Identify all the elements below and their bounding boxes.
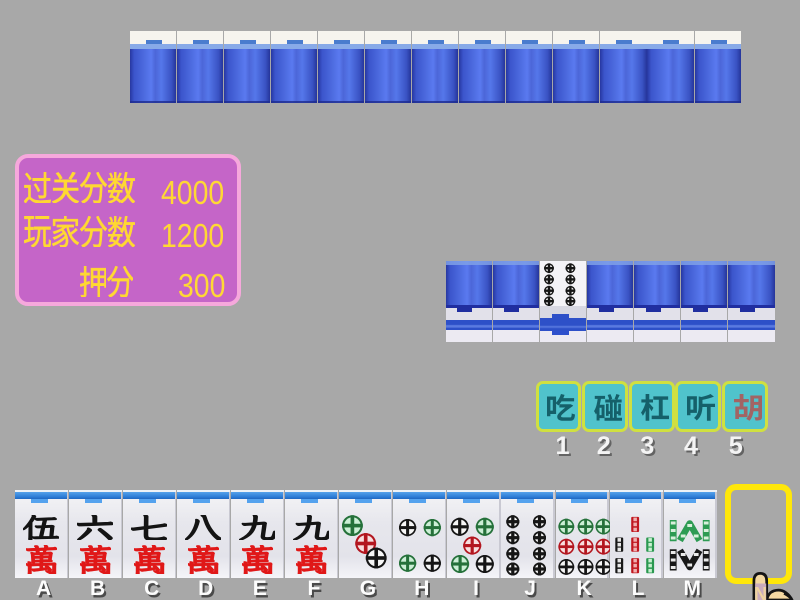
svg-text:N: N — [754, 584, 767, 600]
